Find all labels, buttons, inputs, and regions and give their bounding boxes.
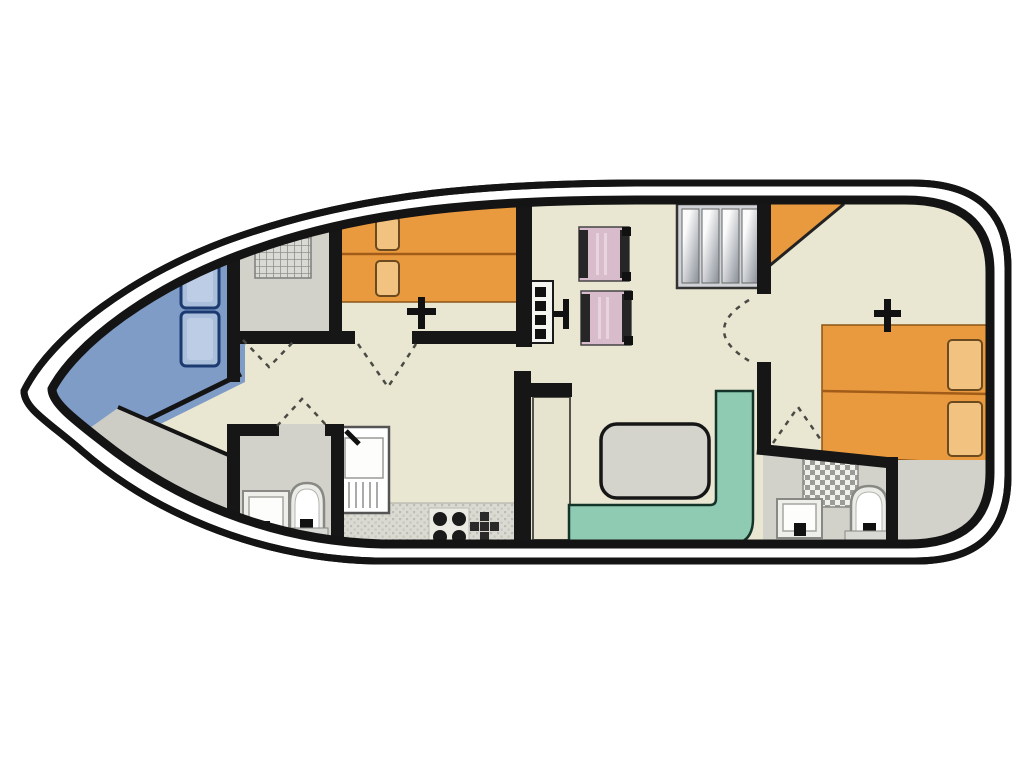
chair-stripe: [598, 297, 601, 339]
wall: [757, 362, 771, 454]
pillow: [948, 340, 982, 390]
chair-stripe: [606, 297, 609, 339]
stair-step: [722, 209, 739, 283]
pilot-chair: [581, 291, 633, 345]
console-knob: [535, 287, 546, 297]
dinette-table: [601, 424, 709, 498]
pillow: [948, 402, 982, 456]
pillow: [376, 261, 399, 296]
wall: [412, 331, 531, 344]
stair-step: [702, 209, 719, 283]
bow-seat-inner: [187, 318, 213, 360]
pilot-chair: [579, 227, 631, 281]
console-knob: [535, 301, 546, 311]
stair-step: [682, 209, 699, 283]
wall: [531, 383, 572, 397]
companionway-stairs-icon: [677, 204, 763, 288]
chair-tab: [622, 227, 631, 236]
console-knob: [535, 329, 546, 339]
chair-armrest: [622, 294, 631, 342]
toilet-icon: [845, 486, 893, 540]
floor-plan-page: [0, 0, 1024, 768]
chair-tab: [624, 291, 633, 300]
wall: [757, 204, 771, 294]
chair-tab: [624, 336, 633, 345]
boat-floor-plan: [0, 0, 1024, 768]
galley-sink-icon: [339, 427, 389, 513]
chair-armrest: [581, 294, 590, 342]
chair-stripe: [596, 233, 599, 275]
wall: [331, 424, 344, 546]
wall: [886, 457, 898, 545]
corridor-cupboard: [533, 397, 570, 540]
chair-stripe: [604, 233, 607, 275]
stair-step: [742, 209, 758, 283]
washbasin-icon: [777, 499, 822, 538]
wall: [516, 202, 532, 347]
console-knob: [535, 315, 546, 325]
chair-armrest: [620, 230, 629, 278]
chair-armrest: [579, 230, 588, 278]
chair-tab: [622, 272, 631, 281]
wall: [514, 371, 531, 548]
